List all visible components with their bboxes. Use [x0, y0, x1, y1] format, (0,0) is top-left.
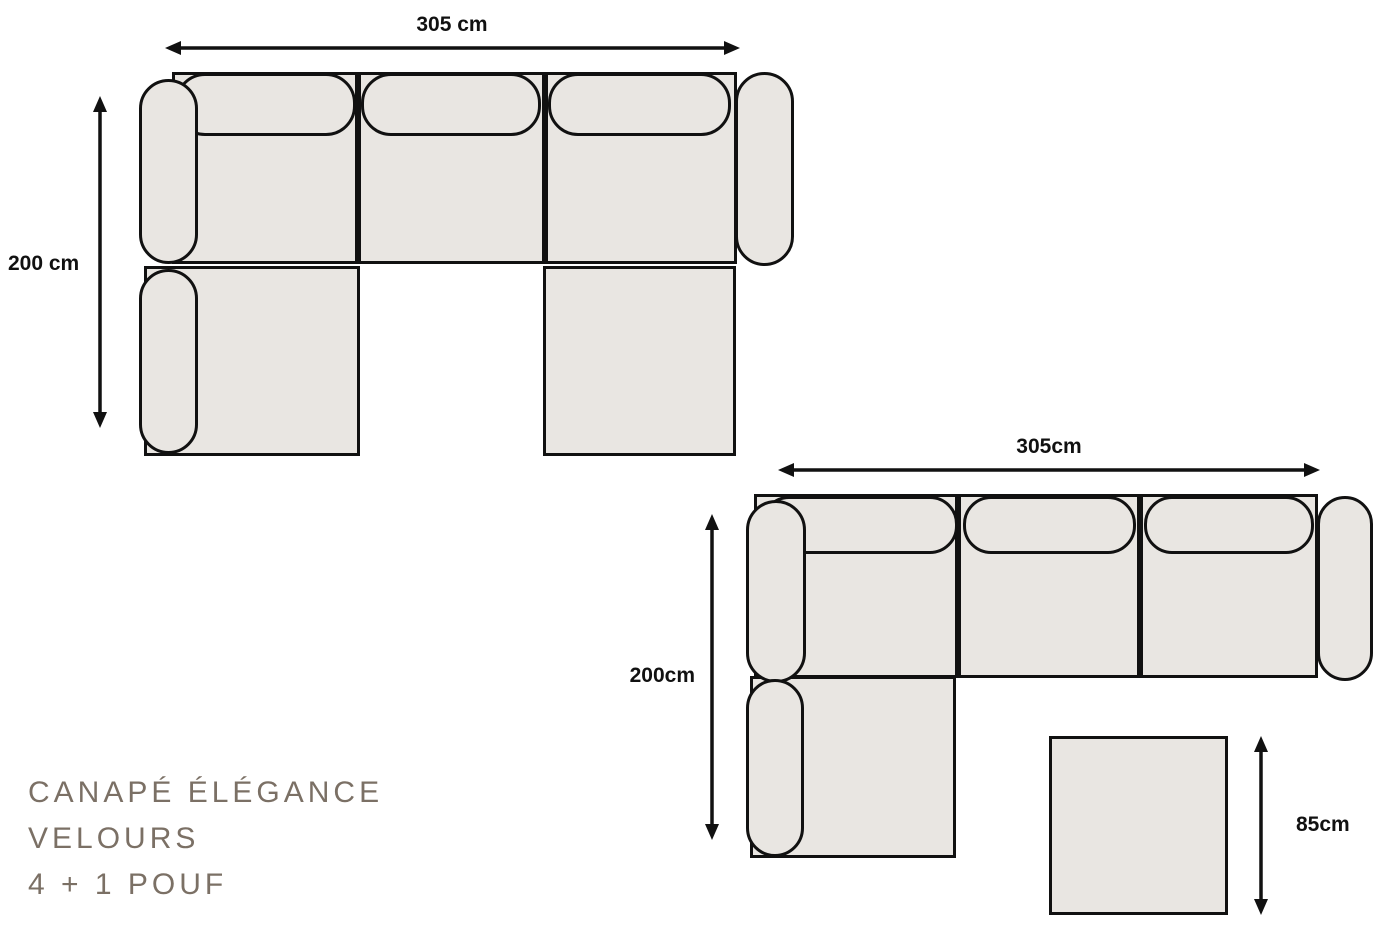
arrow-u-sofa-width [165, 41, 740, 55]
product-title-line-1: CANAPÉ ÉLÉGANCE [28, 770, 383, 816]
sofa-l-armrest-right [1317, 496, 1373, 681]
pouf-square [1049, 736, 1228, 915]
product-title-line-2: VELOURS [28, 816, 383, 862]
arrow-l-sofa-depth [705, 514, 719, 840]
product-title-line-3: 4 + 1 POUF [28, 862, 383, 908]
dimension-label-u-sofa-width: 305 cm [362, 13, 542, 37]
sofa-l-back-cushion-3 [1144, 496, 1314, 554]
sofa-u-chaise-armrest-left [139, 269, 198, 454]
arrow-pouf-size [1254, 736, 1268, 915]
sofa-u-back-cushion-2 [361, 73, 541, 136]
dimension-label-u-sofa-depth: 200 cm [8, 252, 88, 276]
dimension-label-l-sofa-depth: 200cm [600, 664, 695, 688]
product-title: CANAPÉ ÉLÉGANCE VELOURS 4 + 1 POUF [28, 770, 383, 908]
dimension-label-pouf-size: 85cm [1296, 813, 1386, 837]
dimension-label-l-sofa-width: 305cm [959, 435, 1139, 459]
arrow-u-sofa-depth [93, 96, 107, 428]
sofa-u-armrest-right [735, 72, 794, 266]
sofa-l-armrest-left [746, 500, 806, 683]
sofa-l-back-cushion-2 [963, 496, 1136, 554]
sofa-l-chaise-armrest [746, 679, 804, 857]
arrow-l-sofa-width [778, 463, 1320, 477]
sofa-u-chaise-middle [543, 266, 736, 456]
sofa-u-back-cushion-1 [175, 73, 356, 136]
sofa-u-armrest-left [139, 79, 198, 264]
sofa-u-back-cushion-3 [548, 73, 731, 136]
sofa-dimension-diagram: 305 cm 200 cm 305cm 200cm 85cm CANAPÉ ÉL… [0, 0, 1400, 933]
